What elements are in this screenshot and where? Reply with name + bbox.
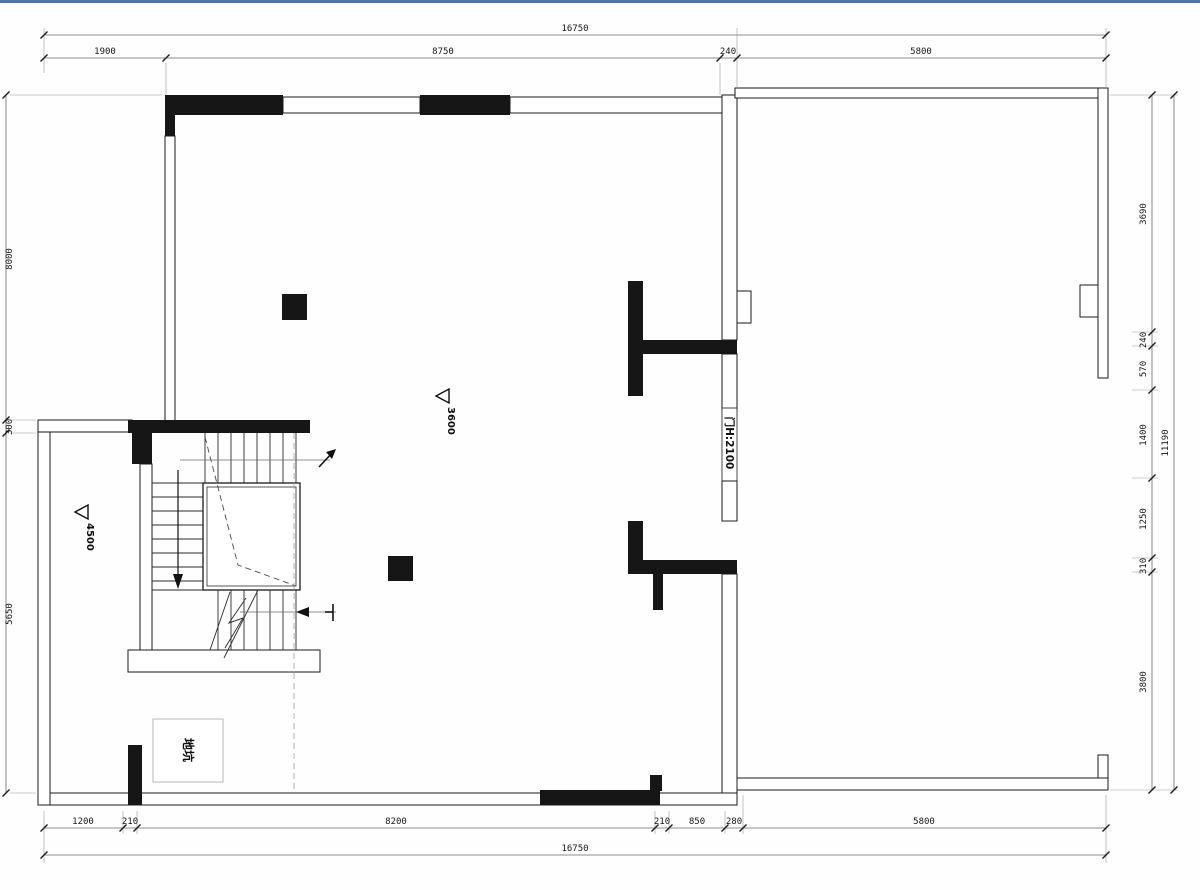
stair-break-line [224,590,258,658]
dim-bottom-1: 1200 [72,817,94,827]
column-1 [282,294,307,320]
dim-left-3: 5650 [5,603,15,625]
annex-black-stub [128,745,142,805]
wall-top-black-2 [420,95,510,115]
annex-wall-left [38,420,50,805]
section-cut-upper [180,449,336,467]
stair-corner-black [132,433,152,464]
dim-top-4: 5800 [910,47,932,57]
dim-right-5: 1250 [1139,508,1149,530]
stair-top-black-band [128,420,310,433]
stair-wall-bottom [128,650,320,672]
wall-middle-upper [722,95,737,340]
dim-right-overall: 11190 [1161,429,1171,456]
dimension-chain-top: 16750 1900 8750 240 5800 [41,24,1110,95]
wall-T-lower-band [628,560,737,574]
dim-bottom-6: 280 [726,817,742,827]
wall-jamb-middle [737,291,751,323]
stair-void-outer [203,483,300,590]
annex-walls [38,420,142,805]
wall-T-upper-bar [628,281,643,396]
wall-middle-seg3 [722,481,737,521]
stair-wall-left [140,464,152,650]
elevation-triangle-icon [75,505,88,519]
dim-top-overall: 16750 [561,24,588,34]
dim-right-6: 310 [1139,558,1149,574]
elevation-value-annex: 4500 [84,523,95,551]
dim-bottom-4: 210 [654,817,670,827]
wall-middle-seg2 [722,354,737,411]
annex-wall-top [38,420,132,432]
wall-T-upper-band [628,340,737,354]
elevation-marker-hall: 3600 [436,389,456,435]
right-wall-top [735,88,1108,98]
dim-bottom-5: 850 [689,817,705,827]
dim-right-2: 240 [1139,332,1149,348]
pit-label: 地坑 [181,738,196,762]
annotations: 地坑 门H:2100 3600 4500 [75,389,736,782]
window-top-2 [510,97,727,113]
dim-right-7: 3800 [1139,671,1149,693]
dim-top-3: 240 [720,47,736,57]
dim-right-3: 570 [1139,361,1149,377]
dim-left-1: 8000 [5,248,15,270]
stair-down-arrow [173,470,183,589]
elevation-value-hall: 3600 [445,407,456,435]
right-wall-jamb [1080,285,1098,317]
dim-right-1: 3690 [1139,203,1149,225]
floor-plan-canvas: 地坑 门H:2100 3600 4500 16750 [0,0,1200,890]
wall-bottom-black-band [540,790,660,805]
wall-top-black-1 [165,95,283,115]
right-building-walls [735,88,1108,790]
wall-middle-lower [722,574,737,793]
section-cut-lower [240,604,336,621]
dim-left-2: 300 [5,419,15,435]
right-wall-bottom [737,778,1108,790]
elevation-marker-annex: 4500 [75,505,95,551]
window-top-1 [283,97,420,113]
stair-treads-top [205,433,296,483]
dim-top-2: 8750 [432,47,454,57]
door-height-label: 门H:2100 [723,417,736,470]
wall-left [165,136,175,423]
dim-bottom-overall: 16750 [561,844,588,854]
dimension-chain-right: 3690 240 570 1400 1250 310 3800 11190 [1110,92,1178,794]
wall-bottom-black-stub [650,775,662,791]
floor-plan-svg: 地坑 门H:2100 3600 4500 16750 [0,3,1200,890]
elevation-triangle-icon [436,389,449,403]
dim-top-1: 1900 [94,47,116,57]
right-wall-right [1098,88,1108,378]
wall-T-lower-stub [653,574,663,610]
column-2 [388,556,413,581]
dim-bottom-2: 210 [122,817,138,827]
dim-right-4: 1400 [1139,424,1149,446]
dim-bottom-3: 8200 [385,817,407,827]
dim-bottom-7: 5800 [913,817,935,827]
wall-left-corner-black [165,95,175,136]
